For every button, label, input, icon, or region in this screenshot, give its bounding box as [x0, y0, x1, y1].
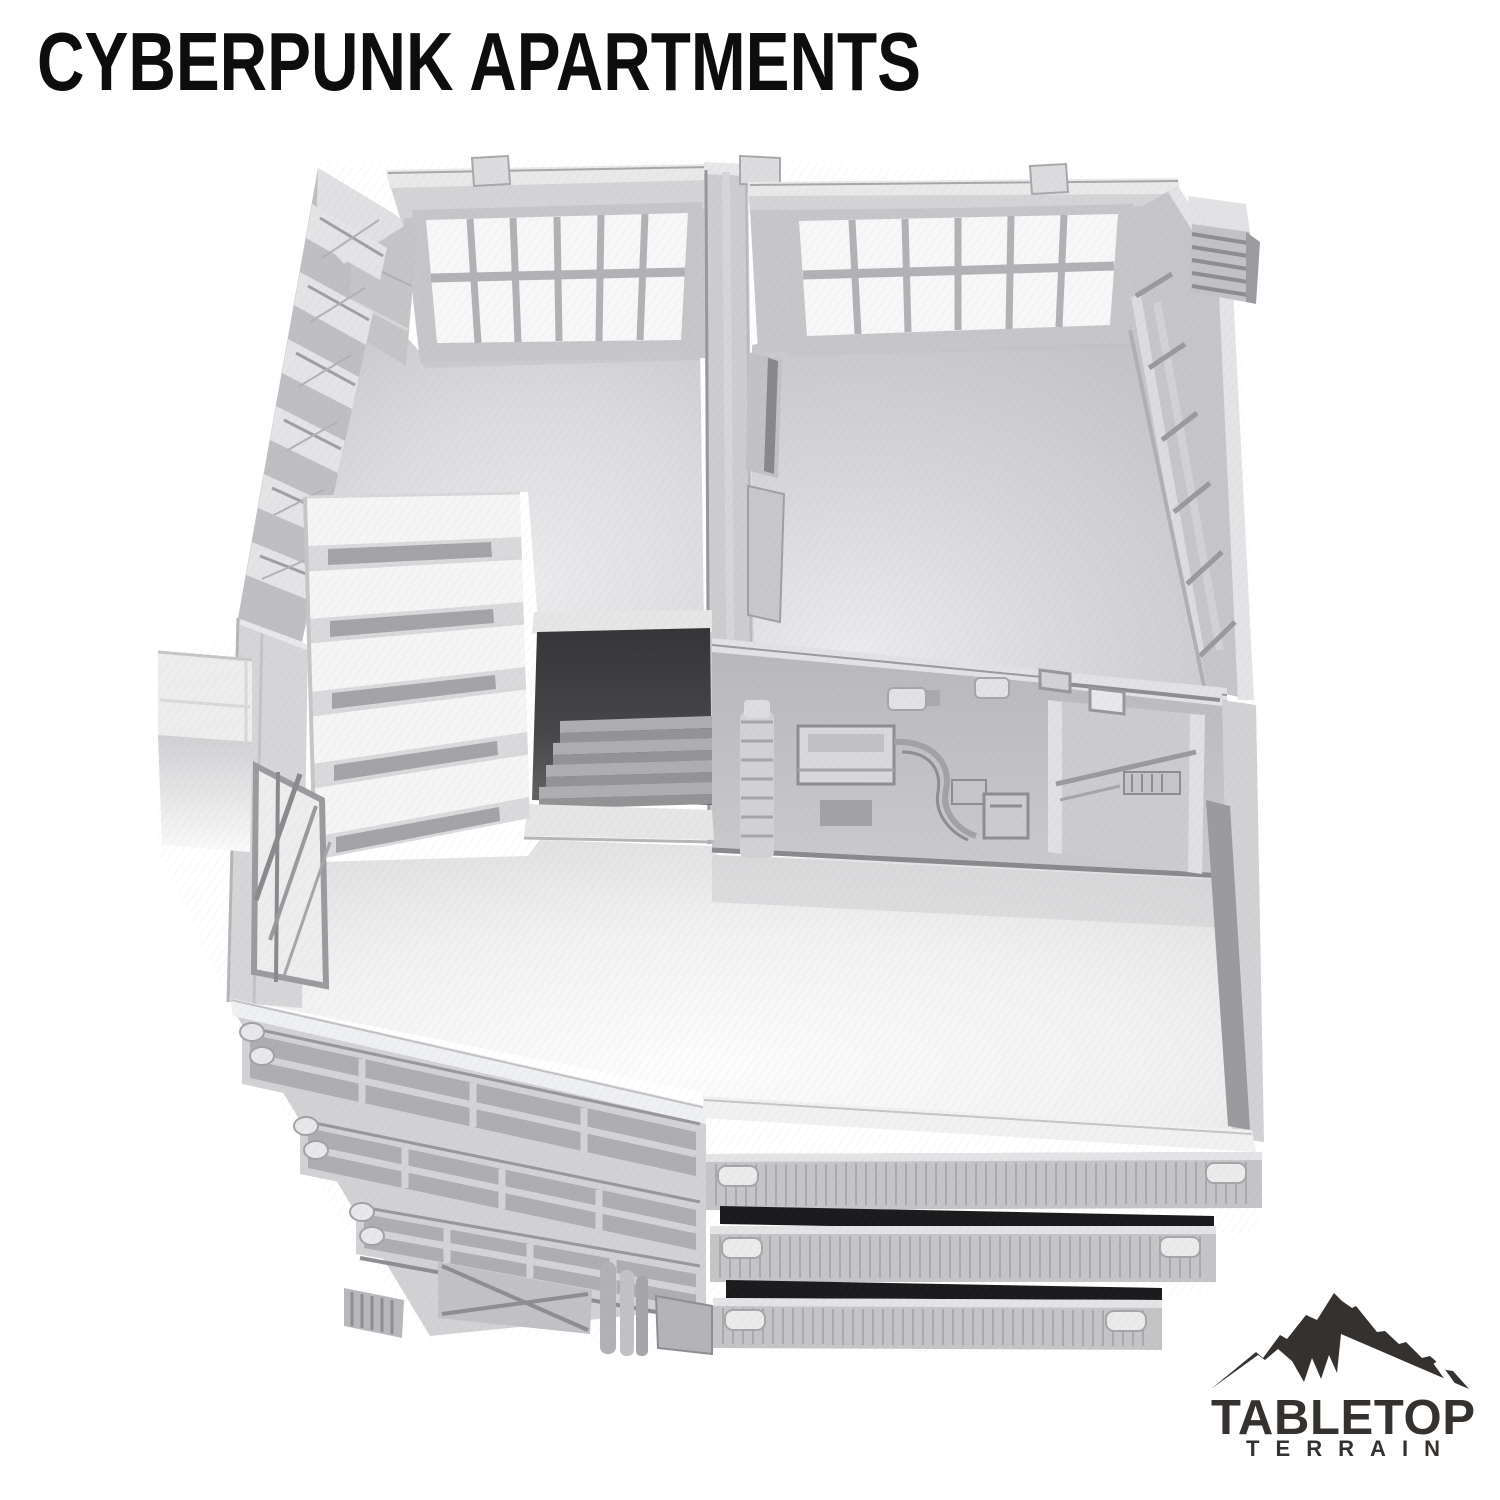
svg-text:CYBERPUNK APARTMENTS: CYBERPUNK APARTMENTS [37, 15, 921, 108]
